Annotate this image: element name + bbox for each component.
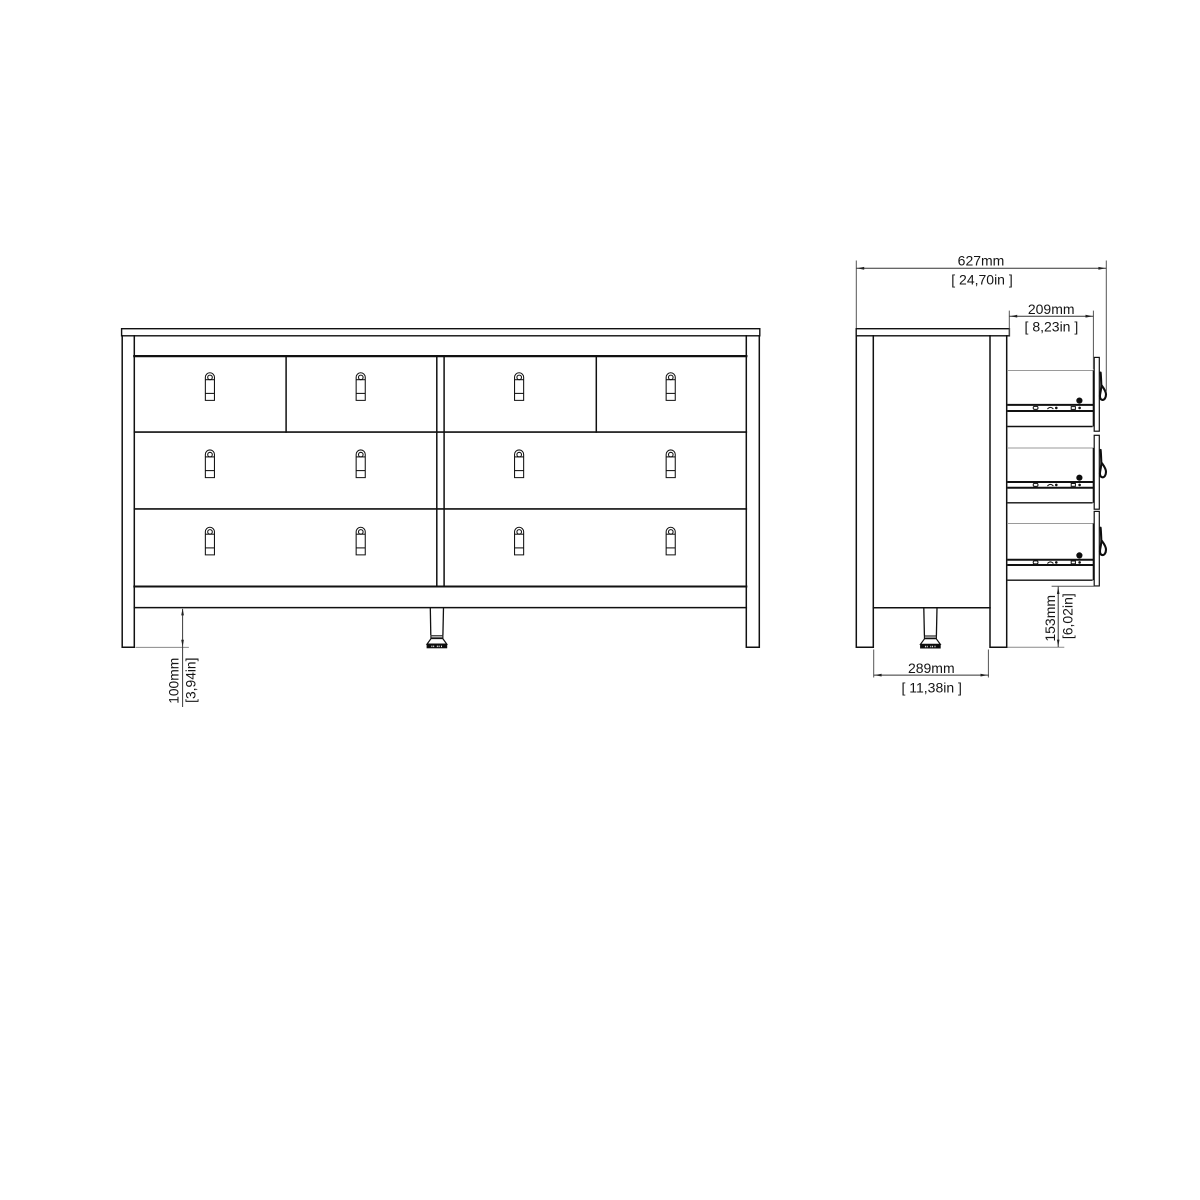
svg-text:627mm: 627mm — [958, 253, 1005, 269]
svg-text:289mm: 289mm — [908, 660, 955, 676]
svg-text:153mm: 153mm — [1042, 595, 1058, 642]
svg-text:100mm: 100mm — [167, 658, 182, 704]
svg-text:[ 11,38in ]: [ 11,38in ] — [901, 679, 961, 695]
svg-text:[3,94in]: [3,94in] — [184, 658, 199, 703]
svg-text:[ 8,23in ]: [ 8,23in ] — [1025, 318, 1079, 334]
svg-text:[ 24,70in ]: [ 24,70in ] — [951, 272, 1013, 288]
svg-text:209mm: 209mm — [1028, 301, 1075, 317]
svg-text:[6,02in]: [6,02in] — [1060, 593, 1076, 639]
